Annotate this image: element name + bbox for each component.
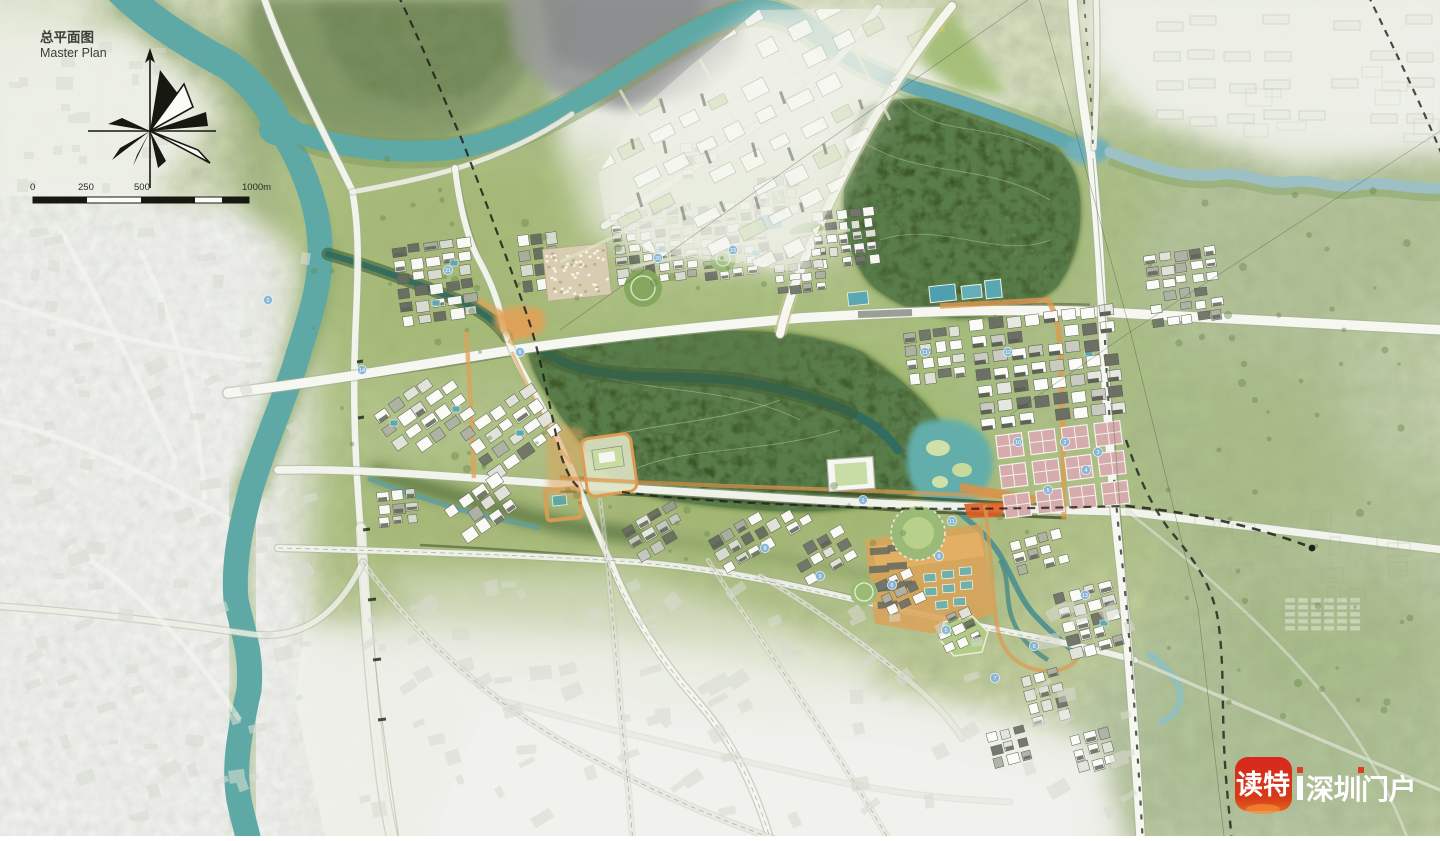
svg-text:11: 11 [949,519,955,525]
svg-text:6: 6 [518,350,521,356]
svg-text:250: 250 [78,182,94,193]
svg-text:8: 8 [937,554,940,560]
svg-text:3: 3 [1096,450,1099,456]
svg-text:4: 4 [1084,468,1087,474]
svg-text:14: 14 [359,368,365,374]
svg-text:Master Plan: Master Plan [40,46,107,60]
svg-text:20: 20 [655,256,661,262]
svg-text:总平面图: 总平面图 [40,29,94,45]
svg-text:9: 9 [818,574,821,580]
svg-text:6: 6 [890,583,893,589]
svg-text:10: 10 [1015,440,1021,446]
svg-text:读特: 读特 [1236,770,1290,800]
svg-text:9: 9 [1032,644,1035,650]
svg-text:11: 11 [922,350,928,356]
svg-text:5: 5 [1046,488,1049,494]
svg-text:1000m: 1000m [242,182,271,193]
svg-text:23: 23 [730,248,736,254]
svg-text:0: 0 [30,182,35,193]
svg-text:7: 7 [993,676,996,682]
svg-text:1: 1 [861,498,864,504]
svg-text:深圳门户: 深圳门户 [1306,773,1416,805]
svg-text:8: 8 [763,546,766,552]
svg-text:21: 21 [445,268,451,274]
svg-text:5: 5 [944,628,947,634]
svg-text:12: 12 [1005,350,1011,356]
svg-text:13: 13 [1082,593,1088,599]
svg-text:500: 500 [134,182,150,193]
svg-text:2: 2 [1063,440,1066,446]
svg-text:2: 2 [266,298,269,304]
